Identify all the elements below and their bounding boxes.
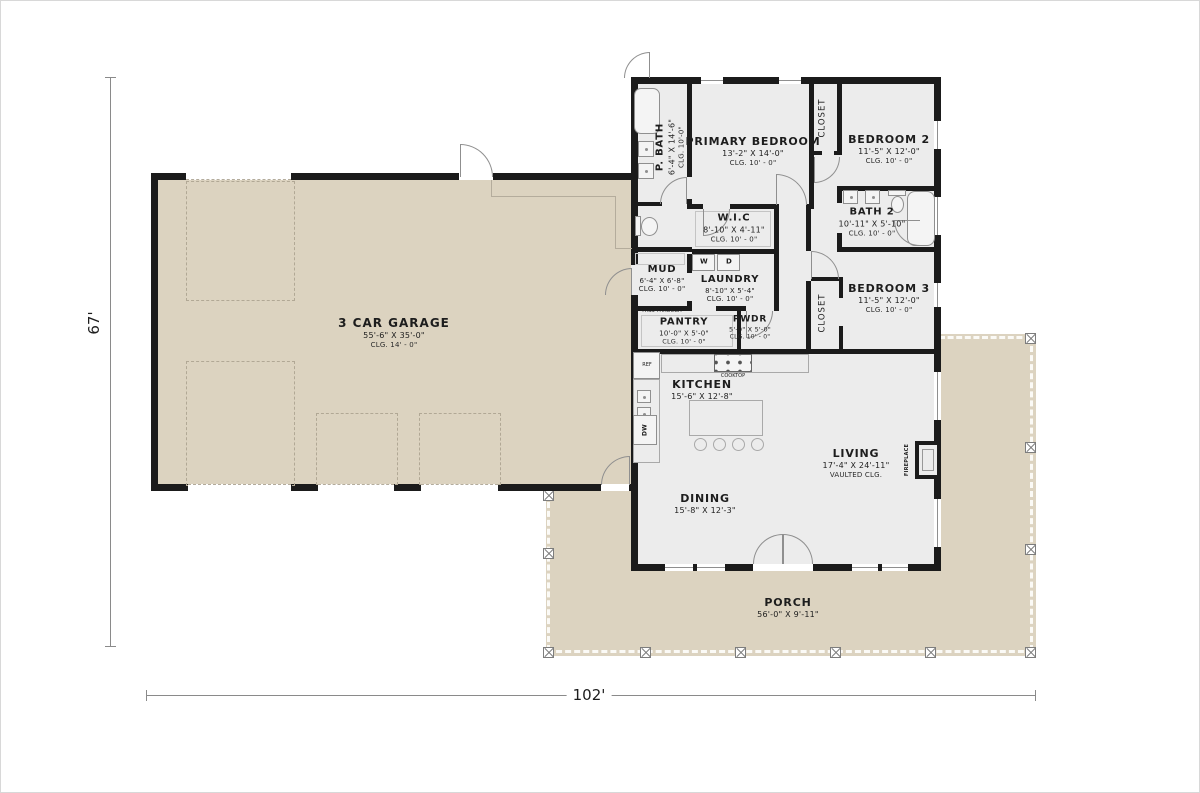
pass-through-label: PASS THROUGH	[642, 308, 682, 314]
island-stool	[751, 438, 764, 451]
sink	[865, 190, 880, 204]
toilet-bowl	[641, 217, 658, 236]
window	[779, 77, 801, 84]
room-size: 8'-10" X 4'-11"	[703, 225, 765, 235]
sink	[843, 190, 858, 204]
room-ceiling: CLG. 10' - 0"	[639, 285, 686, 294]
dimension-tick	[105, 646, 116, 647]
garage-porch-door-opening	[601, 484, 629, 491]
wall-segment	[692, 204, 703, 209]
room-size: 55'-6" X 35'-0"	[338, 331, 450, 341]
dishwasher-label: DW	[641, 424, 649, 436]
room-label-closet-bed2: CLOSET	[818, 98, 829, 137]
kitchen-island	[689, 400, 763, 436]
floor-plan-canvas: 3 CAR GARAGE 55'-6" X 35'-0" CLG. 14' - …	[0, 0, 1200, 793]
dimension-tick	[146, 690, 147, 701]
parking-bay-outline	[419, 413, 501, 485]
porch-edge-top	[939, 336, 1031, 339]
window	[934, 197, 941, 235]
room-ceiling: CLG. 10' - 0"	[703, 235, 765, 244]
room-ceiling: CLG. 10'-0"	[677, 119, 686, 175]
room-label-closet-bed3: CLOSET	[818, 293, 829, 332]
porch-edge-left	[547, 493, 550, 651]
fireplace-label: FIREPLACE	[904, 444, 910, 476]
room-size: 17'-4" X 24'-11"	[823, 461, 890, 471]
fireplace-firebox	[922, 449, 934, 471]
porch-column	[543, 647, 554, 658]
dryer-label: D	[726, 258, 732, 267]
room-label-bedroom3: BEDROOM 3 11'-5" X 12'-0" CLG. 10' - 0"	[848, 282, 930, 315]
garage-drivethrough-door	[186, 173, 291, 180]
room-name: P. BATH	[654, 119, 667, 175]
room-size: 13'-2" X 14'-0"	[686, 149, 821, 159]
window	[882, 564, 908, 571]
room-size: 6'-4" X 6'-8"	[639, 277, 686, 286]
room-size: 11'-5" X 12'-0"	[848, 147, 930, 157]
wall-segment	[638, 202, 662, 206]
island-stool	[713, 438, 726, 451]
porch-column	[925, 647, 936, 658]
dimension-tick	[105, 77, 116, 78]
room-size: 11'-5" X 12'-0"	[848, 296, 930, 306]
porch-column	[1025, 333, 1036, 344]
room-label-primary-bedroom: PRIMARY BEDROOM 13'-2" X 14'-0" CLG. 10'…	[686, 135, 821, 168]
room-name: LIVING	[823, 447, 890, 461]
room-name: W.I.C	[703, 212, 765, 225]
island-stool	[694, 438, 707, 451]
wall-segment	[806, 349, 934, 354]
room-label-pantry: PANTRY 10'-0" X 5'-0" CLG. 10' - 0"	[659, 316, 709, 345]
room-name: CLOSET	[818, 293, 829, 332]
ceiling-break-line	[615, 196, 616, 249]
room-ceiling: CLG. 10' - 0"	[686, 159, 821, 168]
ceiling-break-line	[491, 178, 492, 197]
room-label-wic: W.I.C 8'-10" X 4'-11" CLG. 10' - 0"	[703, 212, 765, 243]
garage-door-2	[318, 484, 394, 491]
room-label-living: LIVING 17'-4" X 24'-11" VAULTED CLG.	[823, 447, 890, 480]
room-ceiling: CLG. 10' - 0"	[839, 229, 906, 238]
room-ceiling: CLG. 10' - 0"	[848, 306, 930, 315]
ceiling-break-line	[491, 196, 616, 197]
wall-segment	[837, 191, 842, 203]
room-name: BEDROOM 2	[848, 133, 930, 147]
room-size: 15'-8" X 12'-3"	[674, 506, 736, 516]
cooktop	[714, 354, 752, 372]
room-name: 3 CAR GARAGE	[338, 316, 450, 331]
room-size: 10'-11" X 5'-10"	[839, 219, 906, 229]
room-size: 15'-6" X 12'-8"	[671, 392, 733, 402]
porch-column	[830, 647, 841, 658]
room-label-kitchen: KITCHEN 15'-6" X 12'-8"	[671, 378, 733, 402]
french-door-opening	[753, 564, 813, 571]
room-label-dining: DINING 15'-8" X 12'-3"	[674, 492, 736, 516]
room-ceiling: CLG. 14' - 0"	[338, 341, 450, 350]
sink	[638, 141, 654, 157]
window	[934, 372, 941, 420]
room-name: PRIMARY BEDROOM	[686, 135, 821, 149]
window	[665, 564, 693, 571]
wall-segment	[806, 209, 811, 251]
wall-segment	[837, 84, 842, 153]
porch-column	[543, 490, 554, 501]
window	[852, 564, 878, 571]
window	[934, 283, 941, 307]
room-name: PORCH	[757, 596, 819, 610]
ceiling-break-line	[615, 248, 632, 249]
kitchen-sink	[637, 390, 651, 403]
dimension-tick	[1035, 690, 1036, 701]
room-label-p-bath: P. BATH 6'-4" X 14'-6" CLG. 10'-0"	[654, 119, 685, 175]
garage-entry-door-swing	[460, 144, 493, 177]
room-name: BEDROOM 3	[848, 282, 930, 296]
dimension-label-width: 102'	[567, 686, 612, 704]
room-size: 6'-4" X 14'-6"	[667, 119, 677, 175]
room-label-porch: PORCH 56'-0" X 9'-11"	[757, 596, 819, 620]
room-name: DINING	[674, 492, 736, 506]
room-label-pwdr: PWDR 5'-0" X 5'-0" CLG. 10' - 0"	[729, 315, 771, 342]
washer-label: W	[700, 258, 708, 267]
room-label-mud: MUD 6'-4" X 6'-8" CLG. 10' - 0"	[639, 264, 686, 294]
room-label-laundry: LAUNDRY 8'-10" X 5'-4" CLG. 10' - 0"	[701, 274, 760, 304]
room-size: 5'-0" X 5'-0"	[729, 326, 771, 334]
porch-column	[735, 647, 746, 658]
room-label-bedroom2: BEDROOM 2 11'-5" X 12'-0" CLG. 10' - 0"	[848, 133, 930, 166]
room-size: 8'-10" X 5'-4"	[701, 287, 760, 296]
parking-bay-outline	[186, 361, 295, 486]
parking-bay-outline	[316, 413, 398, 485]
wall-segment	[839, 326, 843, 351]
room-ceiling: CLG. 10' - 0"	[729, 334, 771, 342]
window	[697, 564, 725, 571]
room-size: 56'-0" X 9'-11"	[757, 610, 819, 620]
room-name: BATH 2	[839, 206, 906, 219]
island-stool	[732, 438, 745, 451]
porch-column	[1025, 442, 1036, 453]
porch-column	[1025, 544, 1036, 555]
room-label-garage: 3 CAR GARAGE 55'-6" X 35'-0" CLG. 14' - …	[338, 316, 450, 350]
parking-bay-outline	[186, 181, 295, 301]
sink	[638, 163, 654, 179]
porch-column	[1025, 647, 1036, 658]
wall-segment	[730, 204, 776, 209]
window	[934, 499, 941, 547]
porch-column	[543, 548, 554, 559]
room-ceiling: CLG. 10' - 0"	[848, 157, 930, 166]
porch-edge-right	[1030, 337, 1033, 651]
room-ceiling: CLG. 10' - 0"	[701, 295, 760, 304]
room-name: PANTRY	[659, 316, 709, 329]
room-name: MUD	[639, 264, 686, 277]
wall-segment	[837, 247, 934, 252]
room-name: PWDR	[729, 315, 771, 326]
room-name: LAUNDRY	[701, 274, 760, 287]
room-name: CLOSET	[818, 98, 829, 137]
room-label-bath2: BATH 2 10'-11" X 5'-10" CLG. 10' - 0"	[839, 206, 906, 237]
wall-segment	[638, 247, 692, 252]
porch-column	[640, 647, 651, 658]
mudroom-door-opening	[631, 265, 638, 295]
room-size: 10'-0" X 5'-0"	[659, 329, 709, 338]
porch-edge-bottom	[547, 650, 1033, 653]
garage-door-3	[421, 484, 498, 491]
front-entry-door-swing	[624, 52, 650, 78]
dimension-line-left	[110, 77, 111, 647]
room-name: KITCHEN	[671, 378, 733, 392]
refrigerator-label: REF	[642, 362, 652, 368]
window	[934, 121, 941, 149]
dimension-label-height: 67'	[85, 305, 103, 340]
cooktop-label: COOKTOP	[721, 373, 745, 379]
window	[701, 77, 723, 84]
wall-segment	[806, 281, 811, 351]
room-ceiling: VAULTED CLG.	[823, 471, 890, 480]
wall-segment	[774, 204, 779, 311]
room-ceiling: CLG. 10' - 0"	[659, 338, 709, 346]
wall-segment	[834, 151, 842, 155]
wall-segment	[716, 306, 746, 311]
garage-door-1	[188, 484, 291, 491]
wall-segment	[839, 277, 843, 298]
